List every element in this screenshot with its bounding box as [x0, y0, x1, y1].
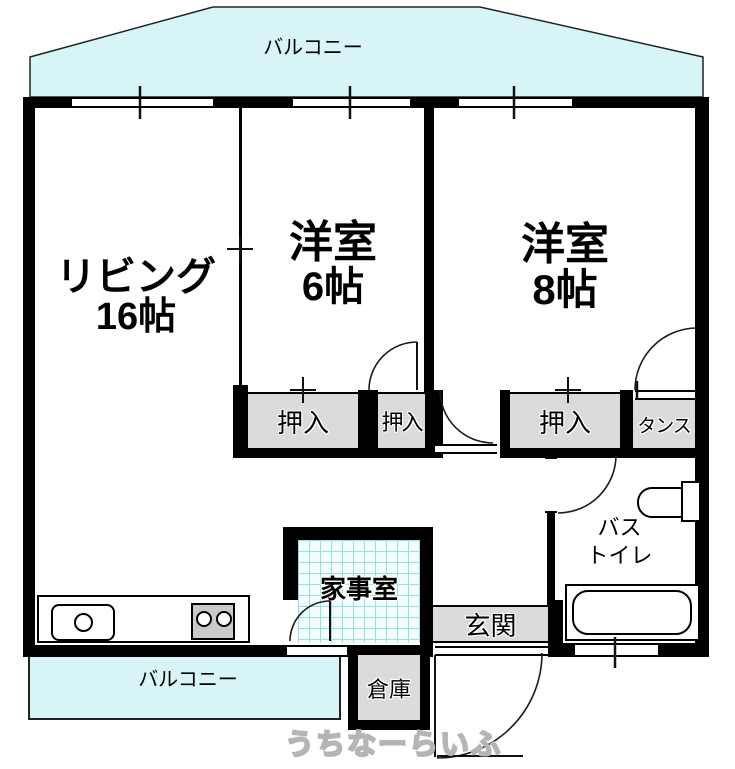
balcony-bottom-label: バルコニー: [108, 670, 268, 691]
living-room-name: リビング: [30, 256, 242, 298]
living-room-label: リビング 16帖: [30, 256, 242, 338]
toilet-tank-icon: [681, 481, 701, 522]
threshold-entrance: [435, 646, 548, 656]
wall-top-b: [213, 97, 293, 108]
wall-top-d: [572, 97, 709, 108]
western8-label: 洋室 8帖: [472, 222, 658, 312]
sink-drain-icon: [74, 613, 93, 632]
wall-top-c: [410, 97, 459, 108]
storage-room: 倉庫: [358, 655, 420, 720]
utility-room-label: 家事室: [298, 576, 420, 603]
western6-name: 洋室: [248, 220, 418, 266]
opening-bath-door: [545, 457, 557, 513]
floor-plan: 押入 押入 押入 タンス 玄関 倉庫 家事室 リビング 16帖 洋室 6帖 洋室…: [0, 0, 735, 769]
western6-label: 洋室 6帖: [248, 220, 418, 308]
storage-room-label: 倉庫: [367, 672, 411, 704]
window-top-3: [459, 97, 572, 108]
wall-closet8-bottom: [500, 448, 709, 458]
western8-name: 洋室: [472, 222, 658, 268]
wall-hall-bath-b: [547, 513, 555, 608]
stove-burner-icon: [216, 611, 232, 627]
wall-closet6-bottom: [233, 448, 443, 458]
closet-label: 押入: [277, 403, 329, 440]
wall-living-western6-divider: [239, 108, 242, 390]
closet-oshiire-west6-right: 押入: [378, 392, 425, 448]
door-arc-western6: [369, 342, 417, 390]
wall-utility-left: [283, 540, 298, 600]
western6-size: 6帖: [248, 266, 418, 308]
bath-label-line2: トイレ: [572, 542, 667, 570]
closet-oshiire-west6-left: 押入: [248, 392, 358, 448]
site-watermark: うちなーらいふ: [285, 721, 502, 763]
wall-left: [23, 97, 35, 657]
wall-entrance-right: [548, 600, 563, 655]
wall-top-a: [23, 97, 72, 108]
bath-toilet-label: バス トイレ: [572, 514, 667, 569]
entrance-genkan: 玄関: [433, 605, 548, 643]
wall-closet8-mid: [620, 390, 633, 455]
closet-oshiire-west8: 押入: [510, 392, 620, 448]
window-top-2: [293, 97, 410, 108]
window-bath-bottom: [575, 643, 658, 657]
door-arc-bath: [558, 455, 616, 513]
closet-label: 押入: [539, 403, 591, 440]
western8-size: 8帖: [472, 268, 658, 312]
bath-label-line1: バス: [572, 514, 667, 542]
wall-utility-top: [283, 527, 433, 540]
door-arc-hall: [440, 390, 493, 443]
door-arc-western8: [635, 328, 697, 390]
wall-western6-western8-divider: [424, 108, 434, 395]
balcony-top-label: バルコニー: [233, 38, 393, 59]
bathtub: [572, 590, 692, 635]
living-room-size: 16帖: [30, 298, 242, 338]
stove-burner-icon: [196, 611, 212, 627]
threshold-western8-door: [635, 390, 695, 400]
wall-bottom-left-a: [23, 645, 287, 657]
closet-tansu: タンス: [633, 400, 695, 448]
tansu-label: タンス: [637, 411, 691, 438]
wall-bottom-right-b: [658, 643, 709, 657]
window-utility-balcony: [287, 645, 347, 657]
threshold-hall: [435, 444, 497, 454]
wall-utility-right: [420, 540, 433, 657]
closet-label: 押入: [381, 405, 421, 437]
wall-right: [695, 97, 709, 657]
window-top-1: [72, 97, 213, 108]
entrance-label: 玄関: [464, 606, 516, 643]
